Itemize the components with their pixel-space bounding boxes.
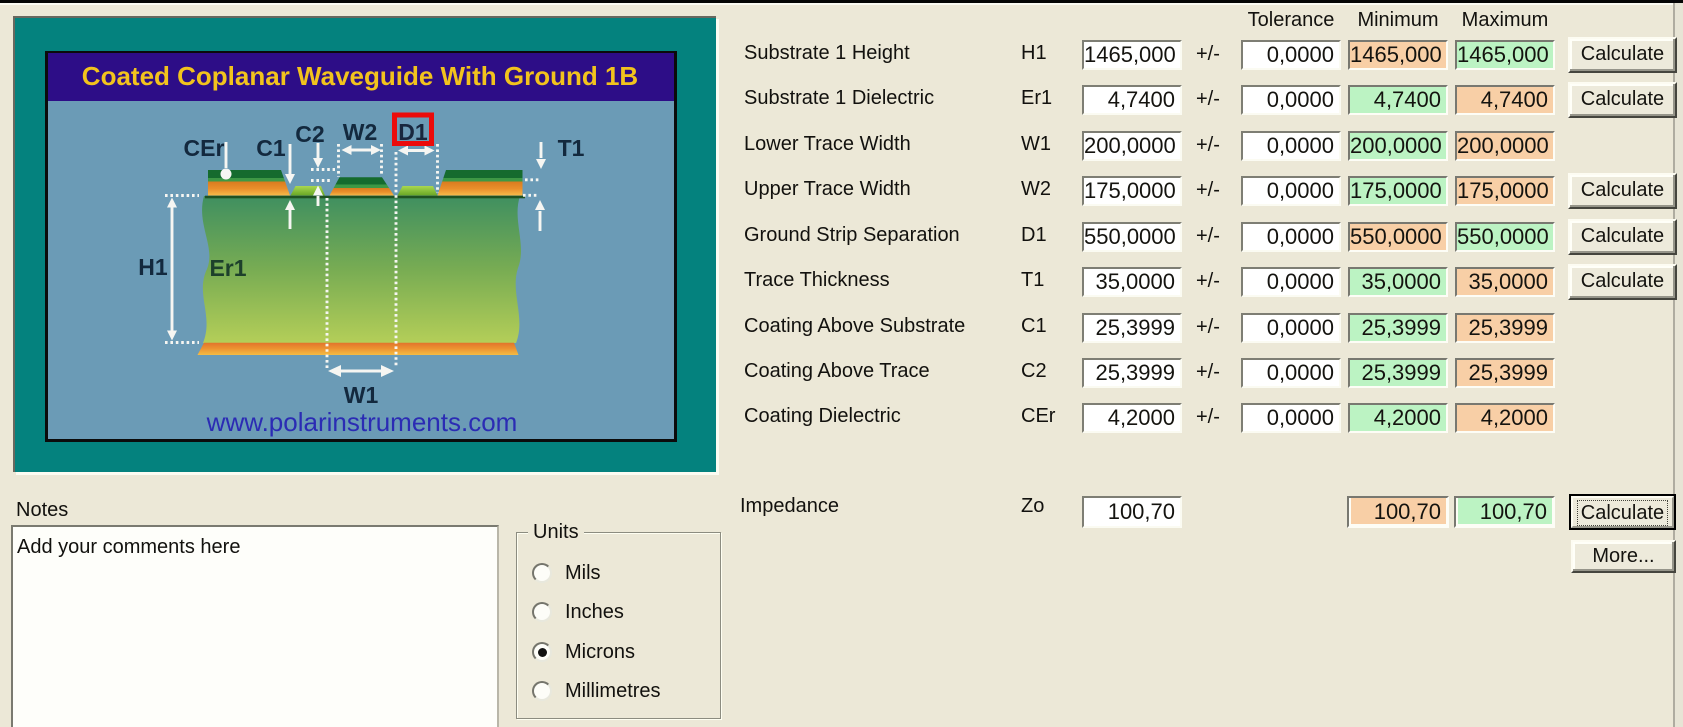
svg-text:C2: C2: [295, 121, 324, 147]
svg-text:www.polarinstruments.com: www.polarinstruments.com: [206, 407, 518, 437]
svg-text:CEr: CEr: [184, 135, 225, 161]
svg-text:Coated Coplanar Waveguide With: Coated Coplanar Waveguide With Ground 1B: [82, 61, 638, 91]
svg-text:H1: H1: [138, 254, 168, 280]
svg-text:W1: W1: [344, 382, 379, 408]
svg-text:Er1: Er1: [209, 255, 246, 281]
svg-text:T1: T1: [558, 135, 585, 161]
svg-text:C1: C1: [256, 135, 286, 161]
svg-text:W2: W2: [343, 119, 378, 145]
svg-text:D1: D1: [398, 119, 428, 145]
